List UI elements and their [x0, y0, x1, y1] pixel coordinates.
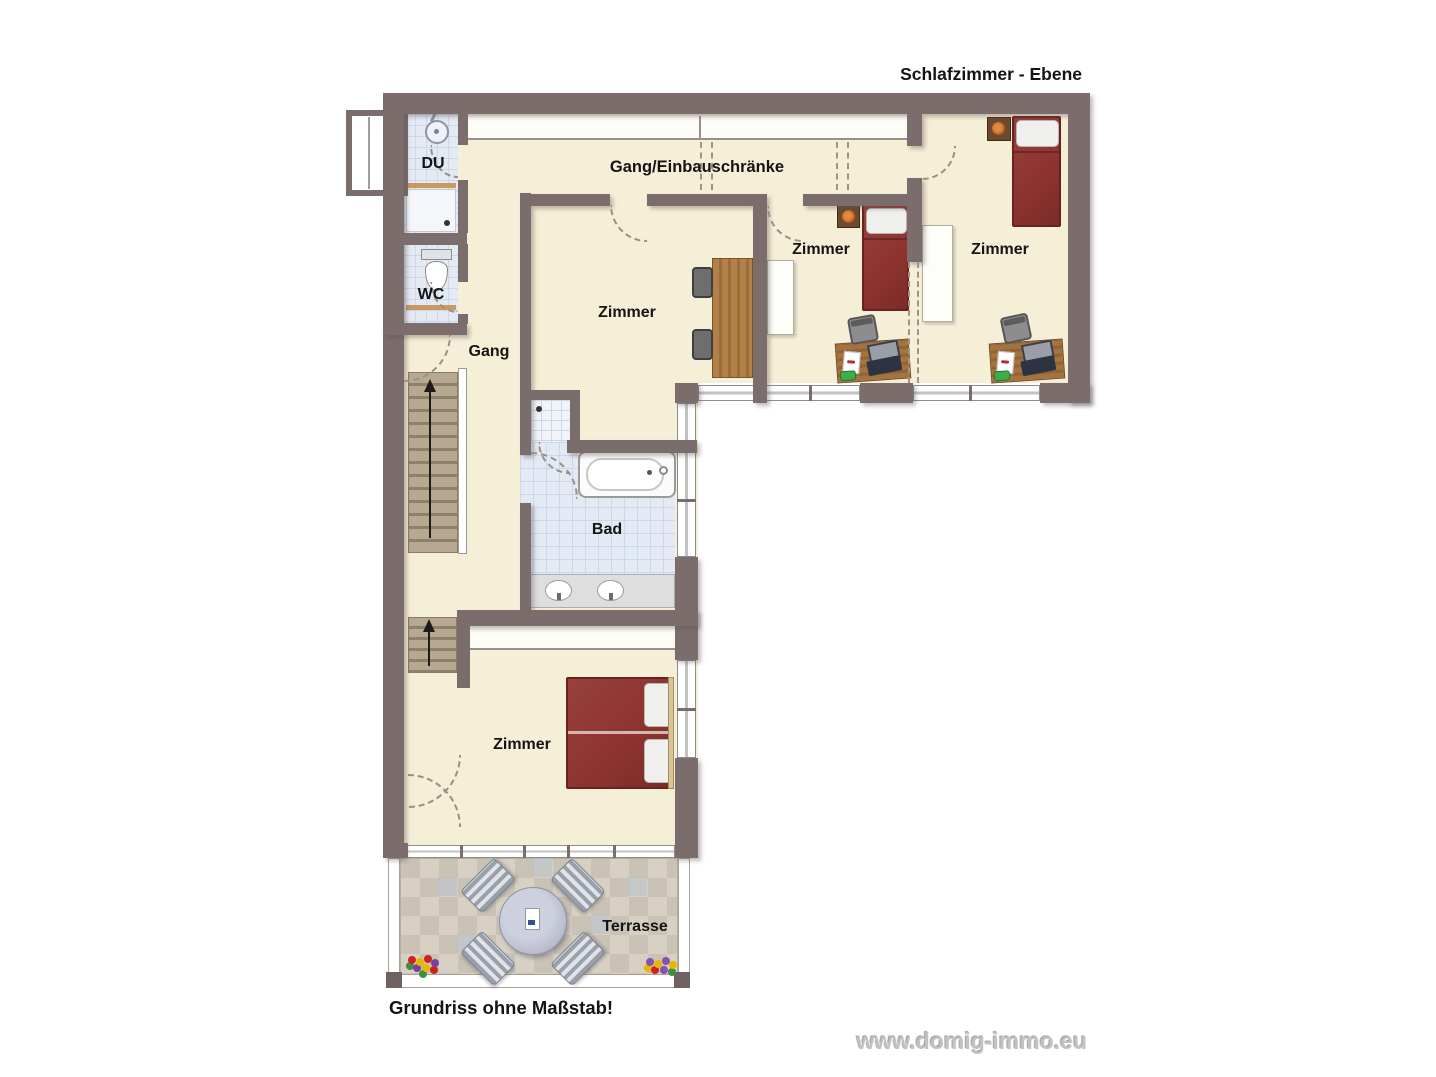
shower-icon-dot — [434, 129, 439, 134]
terrace-corner-right — [675, 843, 698, 858]
room-label-du: DU — [421, 155, 444, 173]
dashed-partition — [917, 262, 919, 383]
dashed-closet-front — [847, 142, 849, 190]
middle-room-nightstand-knob — [842, 210, 855, 223]
middle-room-wardrobe — [767, 260, 794, 335]
du-shelf — [406, 183, 456, 188]
wc-bottom-wall — [383, 323, 467, 335]
terrace-blue-tile — [438, 877, 457, 896]
terrace-door-mullion — [613, 845, 616, 858]
terrace-door-mullion — [567, 845, 570, 858]
du-right-wall-b — [458, 180, 468, 233]
bathtub-overflow — [659, 466, 668, 475]
right-room-wardrobe — [922, 225, 953, 322]
outer-wall-top — [383, 93, 1090, 114]
wall-center-middle — [753, 194, 767, 403]
bathtub-faucet-dot — [647, 470, 652, 475]
bad-left-wall — [520, 503, 531, 610]
room-label-zimmer-bottom: Zimmer — [493, 736, 551, 754]
center-room-bottom-wall — [567, 440, 697, 453]
room-label-wc: WC — [418, 286, 445, 304]
room-label-terrasse: Terrasse — [602, 918, 668, 936]
up-arrow-icon — [429, 392, 431, 538]
built-in-closet-band — [467, 116, 907, 140]
terrace-blue-tile — [533, 858, 552, 877]
terrace-post — [674, 972, 690, 988]
middle-room-bed-fold — [864, 238, 907, 240]
middle-room-desk-chair — [847, 314, 879, 345]
window-east-bad-transom — [677, 499, 696, 502]
wc-right-wall-a — [458, 244, 468, 282]
terrace-rail-bottom — [388, 974, 690, 988]
flowers-icon-right — [646, 958, 654, 966]
toilet-icon-tank — [421, 249, 452, 260]
shower-right-wall — [570, 398, 580, 442]
shower-niche-drain — [536, 406, 542, 412]
room-label-zimmer-center: Zimmer — [598, 304, 656, 322]
wall-middle-right-upper — [907, 114, 922, 146]
room-label-zimmer-middle: Zimmer — [792, 241, 850, 259]
center-room-top-wall-a — [531, 194, 610, 206]
terrace-post — [386, 972, 402, 988]
right-room-desk-chair — [999, 312, 1032, 344]
bathtub-inner — [586, 458, 664, 491]
green-case-icon — [840, 370, 857, 381]
terrace-blue-tile — [628, 877, 647, 896]
flowers-icon-left — [408, 956, 416, 964]
window-south-2 — [913, 385, 1040, 401]
east-wall-upper — [675, 557, 698, 660]
sink-right-faucet — [609, 593, 613, 600]
center-room-top-wall-b — [647, 194, 753, 206]
bay-window-mullion — [368, 117, 370, 189]
room-label-bad: Bad — [592, 521, 622, 539]
du-drain-dot — [444, 220, 450, 226]
right-room-bed-fold — [1014, 151, 1059, 153]
window-south-1-mullion — [809, 385, 812, 401]
south-wall-block-1 — [675, 383, 698, 403]
window-east-bedroom-transom — [677, 708, 696, 711]
right-room-nightstand-knob — [992, 122, 1005, 135]
middle-room-top-wall — [803, 194, 907, 206]
room-label-zimmer-right: Zimmer — [971, 241, 1029, 259]
plan-title: Schlafzimmer - Ebene — [900, 64, 1082, 85]
center-room-chair-2 — [692, 329, 713, 360]
window-south-1 — [698, 385, 860, 401]
double-bed-headboard — [668, 677, 674, 789]
sink-left-faucet — [557, 593, 561, 600]
south-wall-block-2 — [860, 383, 913, 403]
terrace-corner-left — [383, 843, 408, 858]
watermark: www.domig-immo.eu — [857, 1028, 1087, 1055]
outer-wall-right — [1068, 114, 1090, 403]
center-room-desk — [712, 258, 753, 378]
center-room-chair-1 — [692, 267, 713, 298]
south-wall-block-3 — [1040, 383, 1090, 403]
up-arrow-head-icon-lower — [423, 619, 435, 632]
right-room-desk — [989, 338, 1066, 383]
center-room-left-wall — [520, 193, 531, 455]
green-case-icon — [994, 370, 1011, 381]
terrace-door-mullion — [523, 845, 526, 858]
middle-room-desk — [835, 338, 912, 383]
staircase-upper — [408, 372, 458, 553]
terrace-door-band — [404, 845, 675, 858]
room-label-gang: Gang — [469, 343, 510, 361]
dashed-closet-front — [836, 142, 838, 190]
room-label-corridor: Gang/Einbauschränke — [610, 158, 784, 177]
dashed-partition — [908, 262, 910, 383]
terrace-rail-left — [388, 858, 400, 976]
middle-room-pillow — [866, 208, 907, 234]
terrace-table-card — [525, 908, 540, 930]
window-east-bad — [677, 403, 696, 557]
floorplan-canvas: Schlafzimmer - Ebene DU WC Gang Gang/Ein… — [0, 0, 1436, 1077]
terrace-rail-right — [678, 858, 690, 976]
right-room-pillow — [1016, 120, 1059, 147]
du-right-wall-a — [458, 114, 468, 145]
staircase-handrail — [458, 368, 467, 554]
up-arrow-icon-lower — [428, 632, 430, 666]
footer-note: Grundriss ohne Maßstab! — [389, 997, 613, 1019]
stair-side-wall — [457, 610, 470, 688]
window-south-2-mullion — [969, 385, 972, 401]
up-arrow-head-icon — [424, 379, 436, 392]
bedroom-closet-band — [467, 626, 677, 650]
double-bed-split — [568, 731, 672, 734]
bad-bottom-wall — [457, 610, 698, 626]
outer-wall-left — [383, 114, 404, 858]
terrace-door-mullion — [460, 845, 463, 858]
terrace-table-card-mark — [528, 920, 535, 925]
wall-middle-right-mid — [907, 178, 922, 262]
closet-divider — [699, 116, 701, 140]
